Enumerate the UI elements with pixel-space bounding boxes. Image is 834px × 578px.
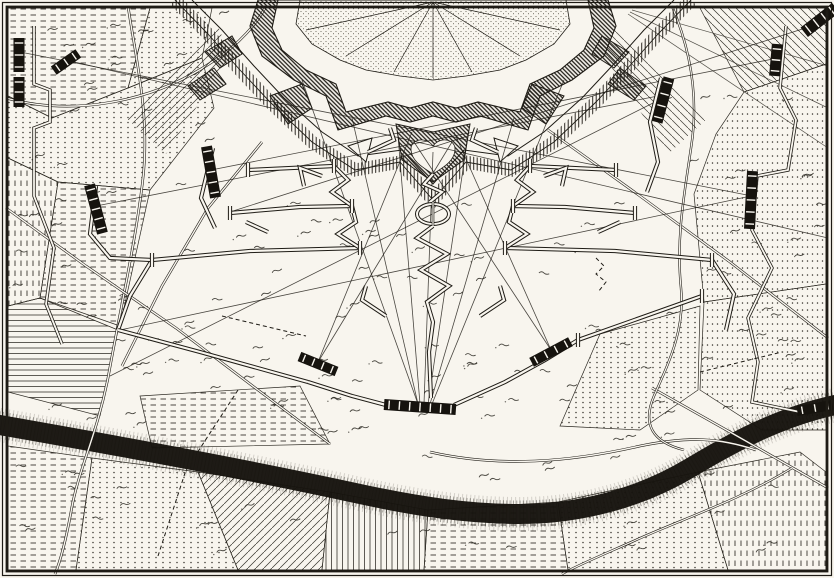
battery: [14, 38, 25, 72]
grass-dot: [423, 306, 424, 307]
grass-dot: [9, 287, 10, 288]
map-canvas: [0, 0, 834, 578]
grass-dot: [800, 178, 801, 179]
grass-dot: [711, 515, 712, 516]
grass-dot: [616, 346, 617, 347]
grass-dot: [787, 242, 788, 243]
grass-dot: [54, 167, 55, 168]
grass-dot: [181, 328, 182, 329]
grass-dot: [463, 365, 464, 366]
grass-dot: [329, 222, 330, 223]
battery-embrasure: [420, 403, 421, 412]
battery-embrasure: [440, 404, 441, 413]
siege-map-engraving: [0, 0, 834, 578]
battery-embrasure: [409, 402, 410, 411]
battery-embrasure: [451, 405, 452, 414]
grass-dot: [787, 343, 788, 344]
grass-dot: [625, 374, 626, 375]
grass-dot: [297, 236, 298, 237]
grass-dot: [133, 427, 134, 428]
grass-dot: [581, 226, 582, 227]
grass-dot: [165, 362, 166, 363]
grass-dot: [661, 437, 662, 438]
grass-dot: [270, 408, 271, 409]
grass-dot: [791, 363, 792, 364]
grass-dot: [495, 347, 496, 348]
grass-dot: [623, 526, 624, 527]
grass-dot: [481, 418, 482, 419]
battery-embrasure: [772, 60, 781, 61]
battery-embrasure: [389, 401, 390, 410]
grass-dot: [368, 363, 369, 364]
battery: [14, 77, 25, 107]
grass-dot: [282, 338, 283, 339]
grass-dot: [136, 366, 137, 367]
grass-dot: [723, 98, 724, 99]
grass-dot: [779, 103, 780, 104]
grass-dot: [348, 432, 349, 433]
grass-dot: [241, 509, 242, 510]
grass-dot: [115, 302, 116, 303]
grass-dot: [412, 252, 413, 253]
grass-dot: [622, 548, 623, 549]
grass-dot: [233, 239, 234, 240]
grass-dot: [765, 487, 766, 488]
grass-dot: [505, 401, 506, 402]
grass-dot: [759, 312, 760, 313]
grass-dot: [318, 378, 319, 379]
grass-dot: [362, 234, 363, 235]
grass-dot: [346, 307, 347, 308]
grass-dot: [213, 554, 214, 555]
battery-embrasure: [430, 403, 431, 412]
grass-dot: [782, 358, 783, 359]
battery-embrasure: [771, 71, 780, 72]
grass-dot: [108, 68, 109, 69]
grass-dot: [196, 527, 197, 528]
grass-dot: [780, 392, 781, 393]
grass-dot: [464, 368, 465, 369]
grass-dot: [108, 59, 109, 60]
grass-dot: [327, 401, 328, 402]
grass-dot: [200, 362, 201, 363]
grass-dot: [585, 328, 586, 329]
grass-dot: [763, 545, 764, 546]
grass-dot: [465, 545, 466, 546]
grass-dot: [637, 370, 638, 371]
grass-dot: [48, 409, 49, 410]
grass-dot: [107, 27, 108, 28]
grass-dot: [204, 526, 205, 527]
battery-embrasure: [773, 49, 782, 50]
grass-dot: [82, 47, 83, 48]
grass-dot: [62, 474, 63, 475]
field-patch: [140, 386, 330, 448]
battery-embrasure: [399, 401, 400, 410]
